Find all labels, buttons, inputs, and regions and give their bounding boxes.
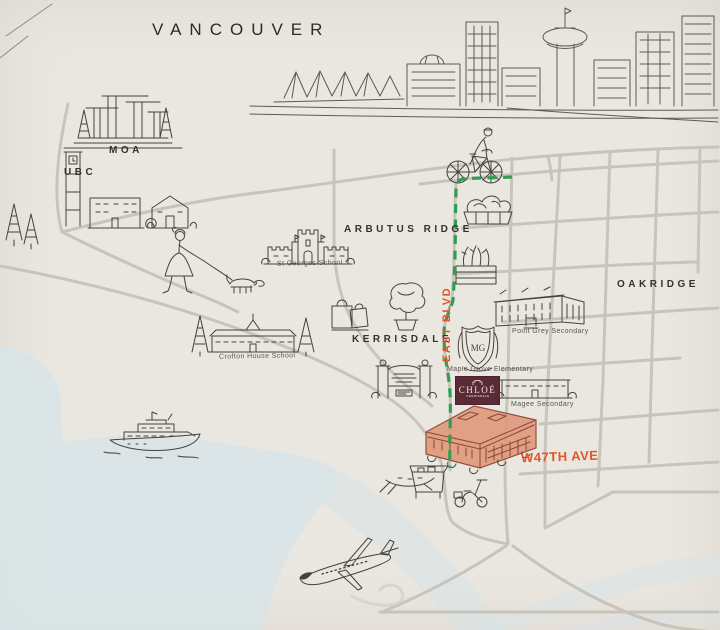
chloe-logo-subtitle: KERRISDALE <box>466 395 489 398</box>
street-label-w47th-ave: W47TH AVE <box>521 448 599 466</box>
campus-gable-house-icon <box>148 196 197 228</box>
chloe-logo-crest-icon <box>472 380 483 385</box>
school-label-magee: Magee Secondary <box>511 401 574 408</box>
ubc-clock-tower-icon <box>64 152 82 226</box>
crest-initials: MG <box>471 343 486 353</box>
map-artwork: MG <box>0 0 720 630</box>
school-label-point-grey: Point Grey Secondary <box>512 328 588 335</box>
vancouver-illustrated-map: MG <box>0 0 720 630</box>
chloe-logo: CHLOÉ KERRISDALE <box>456 377 499 404</box>
area-label-moa: MOA <box>109 145 143 156</box>
mountain-sketch-icon <box>0 4 52 58</box>
topiary-icon <box>390 283 425 330</box>
moa-building-icon <box>64 96 182 148</box>
school-label-maple-grove: Maple Grove Elementary <box>447 366 533 373</box>
scooter-icon <box>454 480 487 507</box>
dog-walker-icon <box>163 227 264 293</box>
water-fraser-river <box>0 346 720 630</box>
area-label-ubc: UBC <box>64 167 96 178</box>
harbour-centre-tower-icon <box>543 8 587 106</box>
canada-place-sails-icon <box>274 71 404 102</box>
area-label-arbutus-ridge: ARBUTUS RIDGE <box>344 224 473 235</box>
garden-crate-icon <box>456 246 496 284</box>
cyclist-icon <box>447 128 502 183</box>
area-label-kerrisdale: KERRISDALE <box>352 334 452 345</box>
school-label-crofton-house: Crofton House School <box>219 352 296 360</box>
chloe-logo-name: CHLOÉ <box>459 386 497 396</box>
pine-trees-icon <box>6 204 38 249</box>
street-label-east-blvd: EAST BLVD <box>441 294 453 362</box>
city-title: VANCOUVER <box>152 20 330 40</box>
maple-grove-crest-icon: MG <box>458 326 497 371</box>
school-label-st-georges: St Georges School <box>277 259 343 267</box>
area-label-oakridge: OAKRIDGE <box>617 279 699 290</box>
garden-planter-icon <box>464 196 512 224</box>
